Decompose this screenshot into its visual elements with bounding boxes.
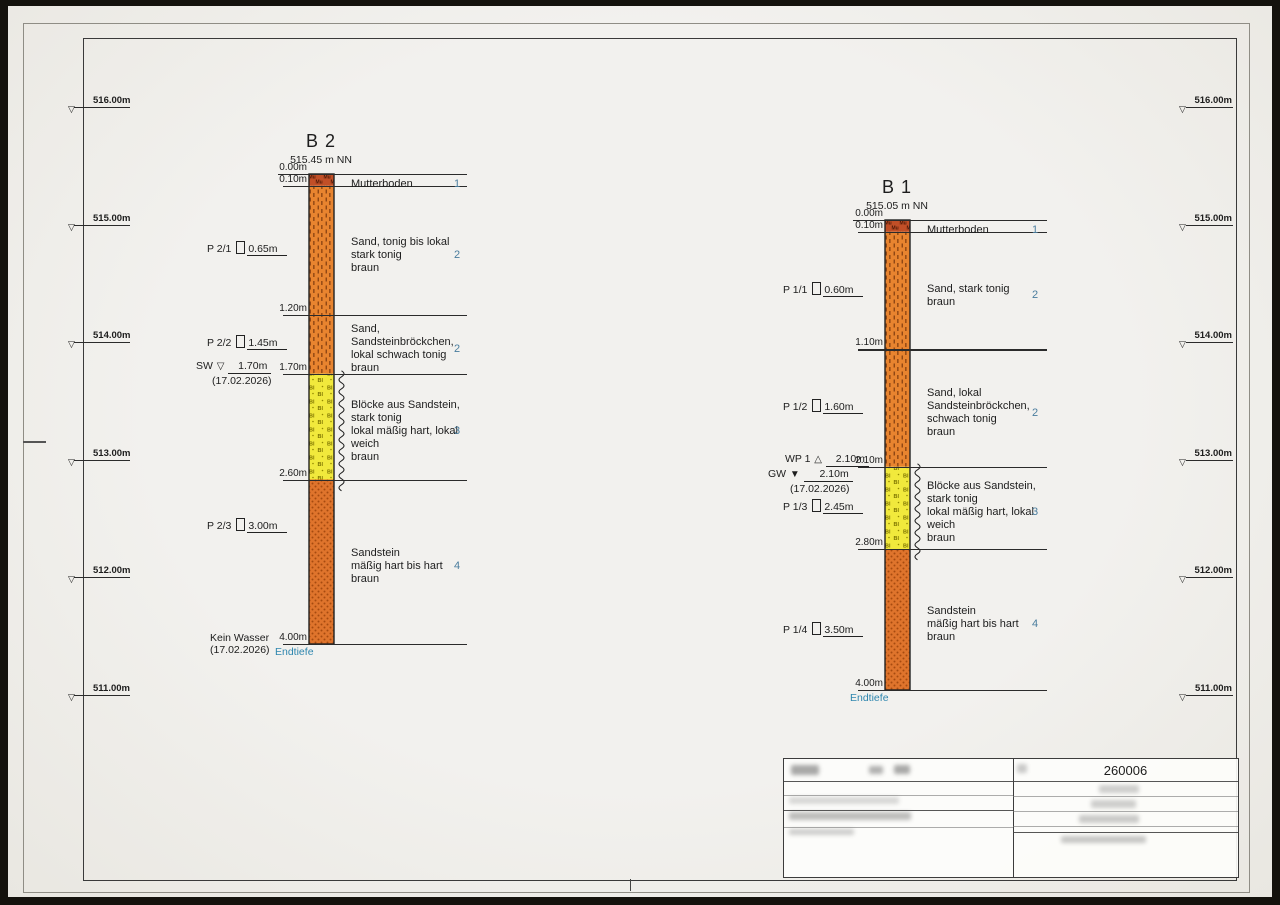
layer-description-line: braun	[927, 532, 1036, 545]
layer-description-line: braun	[351, 451, 460, 464]
title-block-line	[1013, 796, 1238, 797]
sample-depth: 0.60m	[823, 284, 862, 297]
scale-tick-line	[1186, 695, 1233, 696]
title-block-line	[1013, 811, 1238, 812]
scale-tick-line	[74, 225, 130, 226]
scale-tick-line	[1186, 107, 1233, 108]
datum-triangle-icon: ▽	[68, 458, 75, 467]
layer-description-line: braun	[351, 262, 449, 275]
sample-label: P 2/2	[207, 337, 231, 349]
sample-label: P 1/4	[783, 624, 807, 636]
sample-row: P 1/10.60m	[783, 282, 863, 297]
redacted-text	[1061, 836, 1146, 843]
scale-tick-label: 516.00m	[93, 95, 131, 106]
layer-number: 3	[454, 425, 460, 438]
layer-description-line: braun	[351, 573, 443, 586]
sample-label: P 1/1	[783, 284, 807, 296]
layer-description: Sand, lokalSandsteinbröckchen,schwach to…	[927, 387, 1030, 439]
depth-label: 2.60m	[255, 467, 307, 480]
sample-row: P 2/33.00m	[207, 518, 287, 533]
sample-row: P 1/32.45m	[783, 499, 863, 514]
scanned-drawing-sheet: 516.00m▽516.00m▽515.00m▽515.00m▽514.00m▽…	[0, 0, 1280, 905]
layer-number: 2	[1032, 407, 1038, 420]
layer-description-line: Mutterboden	[927, 224, 989, 237]
water-level-marker: SW ▽ 1.70m	[196, 360, 271, 374]
layer-number: 4	[454, 560, 460, 573]
layer-description-line: Sand,	[351, 323, 454, 336]
scale-tick-label: 515.00m	[1192, 213, 1232, 224]
scale-tick-line	[74, 342, 130, 343]
fold-mark-bottom	[630, 879, 631, 891]
water-marker-label: GW	[768, 468, 786, 480]
layer-description: Blöcke aus Sandstein,stark toniglokal mä…	[927, 480, 1036, 545]
no-water-note: Kein Wasser(17.02.2026)	[210, 632, 270, 656]
sample-row: P 1/43.50m	[783, 622, 863, 637]
scale-tick-label: 513.00m	[93, 448, 131, 459]
water-level-marker: WP 1 △ 2.10m	[785, 453, 869, 467]
water-depth: 1.70m	[228, 360, 271, 374]
scale-tick-line	[74, 460, 130, 461]
layer-description-line: Sandsteinbröckchen,	[351, 336, 454, 349]
title-block: 260006	[783, 758, 1239, 878]
layer-description: Mutterboden	[351, 178, 413, 191]
redacted-text	[789, 797, 899, 804]
sample-row: P 2/10.65m	[207, 241, 287, 256]
layer-description: Sandsteinmäßig hart bis hartbraun	[351, 547, 443, 586]
scale-tick-label: 516.00m	[1192, 95, 1232, 106]
layer-description-line: Sandstein	[351, 547, 443, 560]
layer-description-line: lokal mäßig hart, lokal	[351, 425, 460, 438]
depth-label: 2.80m	[831, 536, 883, 549]
layer-description-line: Sand, stark tonig	[927, 283, 1010, 296]
layer-description-line: weich	[351, 438, 460, 451]
borehole-title: B 2	[271, 131, 371, 152]
title-block-line	[1013, 826, 1238, 827]
layer-number: 4	[1032, 618, 1038, 631]
layer-description-line: Sandstein	[927, 605, 1019, 618]
layer-description: Sandsteinmäßig hart bis hartbraun	[927, 605, 1019, 644]
water-level-marker: GW ▼ 2.10m	[768, 468, 853, 482]
layer-description-line: braun	[927, 296, 1010, 309]
depth-label: 0.10m	[831, 219, 883, 232]
water-triangle-icon: △	[810, 454, 825, 465]
water-marker-date: (17.02.2026)	[212, 375, 272, 387]
scale-tick-label: 511.00m	[93, 683, 130, 694]
layer-description: Sand,Sandsteinbröckchen,lokal schwach to…	[351, 323, 454, 375]
sample-label: P 2/3	[207, 520, 231, 532]
redacted-stamp	[869, 766, 883, 774]
datum-triangle-icon: ▽	[68, 340, 75, 349]
layer-description-line: mäßig hart bis hart	[927, 618, 1019, 631]
layer-description-line: Sandsteinbröckchen,	[927, 400, 1030, 413]
sample-box-icon	[812, 282, 821, 295]
layer-description: Mutterboden	[927, 224, 989, 237]
depth-label: 1.10m	[831, 336, 883, 349]
scale-tick-line	[1186, 342, 1233, 343]
layer-description-line: braun	[351, 362, 454, 375]
depth-label: 1.20m	[255, 302, 307, 315]
project-number: 260006	[1013, 763, 1238, 779]
layer-description-line: Sand, tonig bis lokal	[351, 236, 449, 249]
title-block-line	[784, 781, 1238, 782]
water-depth: 2.10m	[804, 468, 853, 482]
sample-row: P 2/21.45m	[207, 335, 287, 350]
layer-description-line: weich	[927, 519, 1036, 532]
water-triangle-icon: ▽	[213, 361, 228, 372]
sample-depth: 1.45m	[247, 337, 286, 350]
scale-tick-label: 513.00m	[1192, 448, 1232, 459]
scale-tick-label: 514.00m	[93, 330, 131, 341]
borehole-column: MuMu BlBl	[884, 219, 932, 695]
title-block-line	[784, 795, 1013, 796]
layer-description-line: schwach tonig	[927, 413, 1030, 426]
layer-description-line: stark tonig	[351, 412, 460, 425]
no-water-note-line: Kein Wasser	[210, 632, 270, 644]
layer-description-line: stark tonig	[927, 493, 1036, 506]
water-depth: 2.10m	[826, 453, 869, 467]
depth-label: 0.10m	[255, 173, 307, 186]
layer-description: Blöcke aus Sandstein,stark toniglokal mä…	[351, 399, 460, 464]
sample-box-icon	[236, 518, 245, 531]
layer-boundary-line	[283, 480, 467, 481]
sample-depth: 0.65m	[247, 243, 286, 256]
layer-description-line: braun	[927, 631, 1019, 644]
redacted-text	[1099, 785, 1139, 793]
layer-number: 1	[454, 178, 460, 191]
water-marker-label: WP 1	[785, 453, 810, 465]
water-marker-label: SW	[196, 360, 213, 372]
scale-tick-label: 512.00m	[93, 565, 131, 576]
borehole-title: B 1	[847, 177, 947, 198]
end-depth-label: Endtiefe	[850, 692, 889, 704]
layer-number: 2	[454, 343, 460, 356]
sample-box-icon	[236, 241, 245, 254]
scale-tick-label: 512.00m	[1192, 565, 1232, 576]
layer-boundary-line	[858, 467, 1047, 468]
redacted-text	[789, 812, 911, 820]
layer-description: Sand, tonig bis lokalstark tonigbraun	[351, 236, 449, 275]
sample-depth: 2.45m	[823, 501, 862, 514]
layer-boundary-line	[858, 549, 1047, 550]
layer-number: 2	[1032, 289, 1038, 302]
layer-number: 1	[1032, 224, 1038, 237]
sample-depth: 3.00m	[247, 520, 286, 533]
redacted-text	[789, 829, 854, 835]
datum-triangle-icon: ▽	[68, 105, 75, 114]
layer-number: 3	[1032, 506, 1038, 519]
sample-box-icon	[236, 335, 245, 348]
layer-description-line: Blöcke aus Sandstein,	[927, 480, 1036, 493]
layer-description-line: lokal schwach tonig	[351, 349, 454, 362]
title-block-line	[784, 810, 1013, 811]
redacted-stamp	[791, 765, 819, 775]
scale-tick-line	[74, 695, 130, 696]
layer-description-line: lokal mäßig hart, lokal	[927, 506, 1036, 519]
redacted-text	[1091, 800, 1136, 808]
layer-description-line: mäßig hart bis hart	[351, 560, 443, 573]
redacted-stamp	[894, 765, 910, 774]
scale-tick-line	[74, 577, 130, 578]
datum-triangle-icon: ▽	[1179, 575, 1186, 584]
sample-label: P 2/1	[207, 243, 231, 255]
borehole-column: MuMu BlBl	[308, 173, 356, 649]
datum-triangle-icon: ▽	[1179, 340, 1186, 349]
scale-tick-line	[1186, 460, 1233, 461]
sample-depth: 3.50m	[823, 624, 862, 637]
sample-label: P 1/3	[783, 501, 807, 513]
scale-tick-line	[1186, 577, 1233, 578]
datum-triangle-icon: ▽	[68, 575, 75, 584]
scale-tick-line	[74, 107, 130, 108]
layer-boundary-line	[858, 349, 1047, 350]
fold-mark-left	[23, 441, 46, 443]
layer-description-line: braun	[927, 426, 1030, 439]
water-triangle-icon: ▼	[786, 469, 803, 480]
scale-tick-line	[1186, 225, 1233, 226]
title-block-line	[1013, 832, 1238, 833]
water-marker-date: (17.02.2026)	[790, 483, 850, 495]
layer-number: 2	[454, 249, 460, 262]
sample-depth: 1.60m	[823, 401, 862, 414]
datum-triangle-icon: ▽	[1179, 105, 1186, 114]
datum-triangle-icon: ▽	[68, 223, 75, 232]
no-water-note-line: (17.02.2026)	[210, 644, 270, 656]
redacted-text	[1079, 815, 1139, 823]
scale-tick-label: 515.00m	[93, 213, 131, 224]
datum-triangle-icon: ▽	[1179, 693, 1186, 702]
layer-description-line: stark tonig	[351, 249, 449, 262]
layer-description: Sand, stark tonigbraun	[927, 283, 1010, 309]
sample-box-icon	[812, 622, 821, 635]
layer-description-line: Sand, lokal	[927, 387, 1030, 400]
title-block-line	[784, 827, 1013, 828]
scale-tick-label: 514.00m	[1192, 330, 1232, 341]
scale-tick-label: 511.00m	[1192, 683, 1232, 694]
layer-description-line: Mutterboden	[351, 178, 413, 191]
sample-label: P 1/2	[783, 401, 807, 413]
end-depth-label: Endtiefe	[275, 646, 314, 658]
layer-boundary-line	[283, 315, 467, 316]
depth-label: 4.00m	[831, 677, 883, 690]
datum-triangle-icon: ▽	[1179, 458, 1186, 467]
datum-triangle-icon: ▽	[68, 693, 75, 702]
sample-box-icon	[812, 399, 821, 412]
layer-description-line: Blöcke aus Sandstein,	[351, 399, 460, 412]
datum-triangle-icon: ▽	[1179, 223, 1186, 232]
sample-row: P 1/21.60m	[783, 399, 863, 414]
sample-box-icon	[812, 499, 821, 512]
